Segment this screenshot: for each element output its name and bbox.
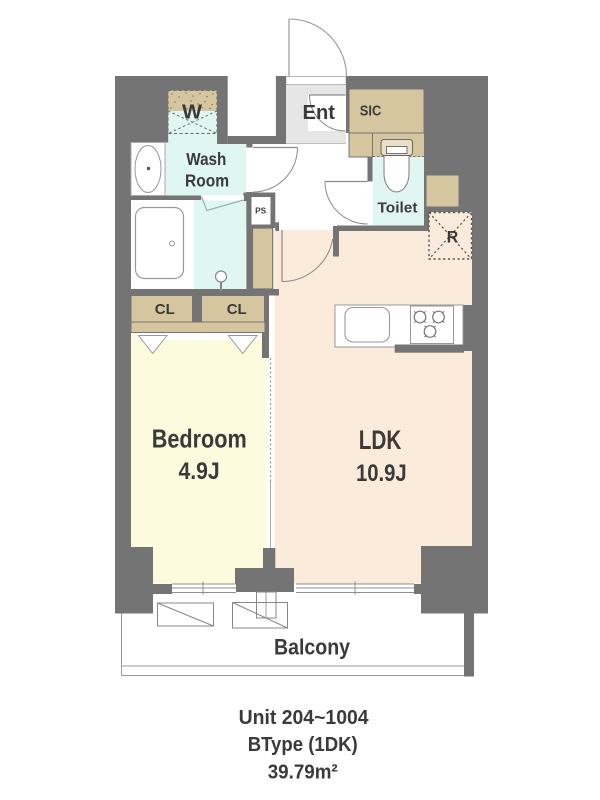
svg-text:Balcony: Balcony <box>274 635 351 660</box>
svg-text:Toilet: Toilet <box>378 201 418 217</box>
svg-text:W: W <box>182 102 202 124</box>
svg-text:Ent: Ent <box>303 102 336 124</box>
svg-text:Unit 204~1004: Unit 204~1004 <box>239 706 370 729</box>
svg-text:CL: CL <box>227 301 247 318</box>
svg-text:CL: CL <box>155 301 175 318</box>
svg-text:10.9J: 10.9J <box>356 460 407 487</box>
svg-text:4.9J: 4.9J <box>179 458 220 485</box>
svg-text:Room: Room <box>185 171 229 191</box>
svg-text:PS: PS <box>255 207 267 216</box>
svg-text:R: R <box>447 229 459 247</box>
svg-text:Wash: Wash <box>186 149 226 169</box>
svg-text:LDK: LDK <box>359 425 402 455</box>
svg-text:SIC: SIC <box>360 104 382 120</box>
svg-text:Bedroom: Bedroom <box>152 424 247 454</box>
svg-text:39.79m²: 39.79m² <box>268 761 338 784</box>
svg-text:BType (1DK): BType (1DK) <box>248 733 358 756</box>
